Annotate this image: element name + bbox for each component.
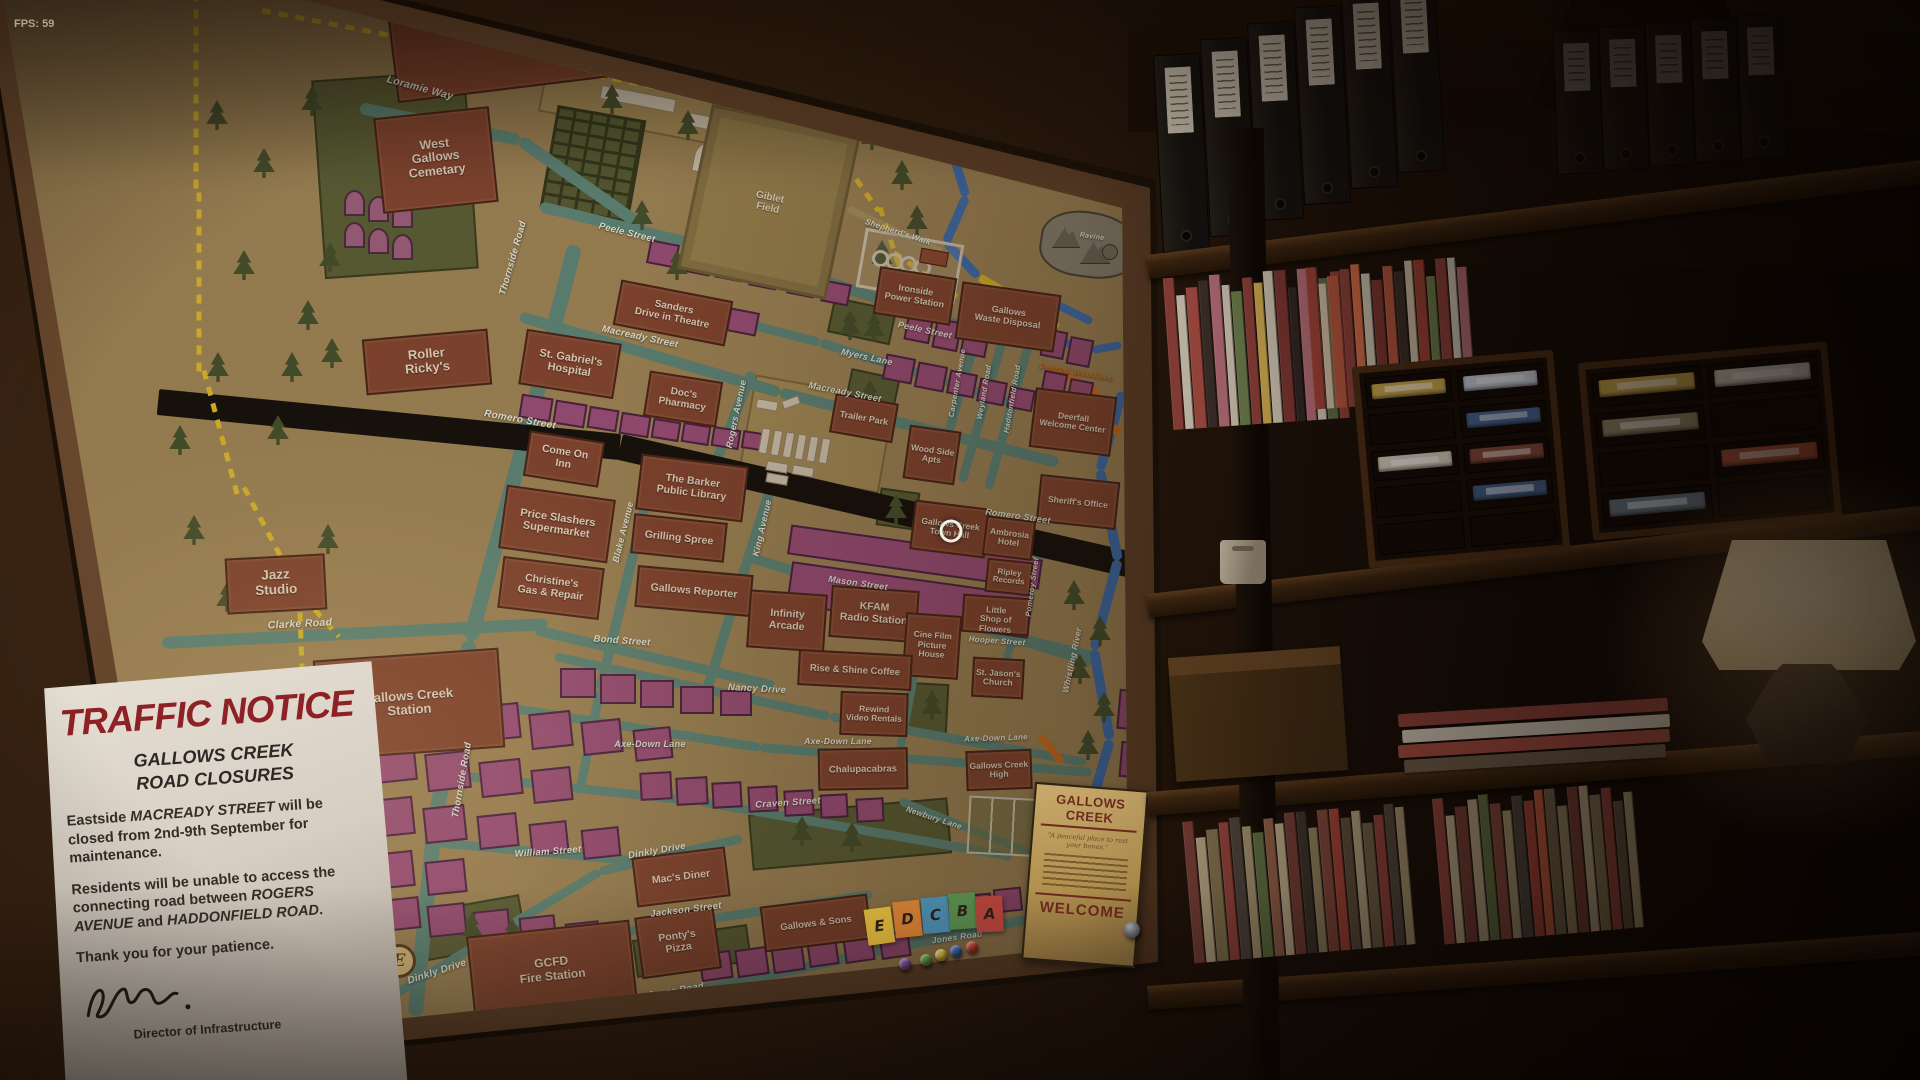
- storage-box: [1168, 646, 1348, 782]
- cassette-slot: [1713, 434, 1826, 477]
- cassette-tape: [1378, 451, 1453, 472]
- cassette-slot: [1371, 444, 1459, 482]
- binder-ring-hole: [1321, 182, 1334, 195]
- binder: [1341, 0, 1398, 189]
- cassette-slot: [1591, 365, 1704, 408]
- binder-ring-hole: [1368, 166, 1381, 179]
- cassette-slot: [1710, 394, 1823, 437]
- cassette-slot: [1463, 436, 1551, 474]
- binder-spine-label: [1609, 39, 1637, 88]
- binder-ring-hole: [1574, 152, 1586, 164]
- binder-ring-hole: [1415, 150, 1428, 163]
- cassette-slot: [1594, 404, 1707, 447]
- binder-spine-label: [1655, 35, 1683, 84]
- cassette-slot: [1456, 363, 1544, 401]
- cassette-slot: [1598, 444, 1711, 487]
- notice-title: TRAFFIC NOTICE: [58, 682, 362, 745]
- binder-ring-hole: [1758, 136, 1770, 148]
- cassette-slot: [1469, 509, 1557, 547]
- notice-subtitle: GALLOWS CREEK ROAD CLOSURES: [62, 734, 366, 800]
- lamp-shade[interactable]: [1702, 540, 1916, 670]
- cassette-organizer: [1578, 341, 1843, 540]
- binder-spine-label: [1164, 66, 1193, 133]
- cassette-slot: [1377, 517, 1465, 555]
- cassette-slot: [1374, 481, 1462, 519]
- cassette-organizer: [1352, 350, 1571, 569]
- notice-paragraph-2: Residents will be unable to access the c…: [71, 860, 376, 937]
- cassette-slot: [1601, 484, 1714, 527]
- binder-ring-hole: [1180, 230, 1193, 243]
- cassette-tape: [1602, 412, 1698, 437]
- cassette-tape: [1472, 480, 1547, 501]
- cassette-tape: [1714, 362, 1810, 387]
- binder-spine-label: [1211, 50, 1240, 117]
- cassette-tape: [1463, 370, 1538, 391]
- cassette-tape: [1469, 443, 1544, 464]
- fps-counter: FPS: 59: [14, 18, 54, 30]
- cassette-tape: [1609, 492, 1705, 517]
- binder: [1737, 13, 1788, 159]
- cassette-tape: [1721, 442, 1817, 467]
- binder-spine-label: [1399, 0, 1428, 54]
- binder: [1599, 25, 1650, 171]
- cassette-tape: [1599, 373, 1695, 398]
- binder-ring-hole: [1712, 140, 1724, 152]
- binder-ring-hole: [1666, 144, 1678, 156]
- binder: [1645, 21, 1696, 167]
- cursor-ring[interactable]: [940, 520, 963, 543]
- notice-paragraph-1: Eastside MACREADY STREET will be closed …: [66, 792, 371, 869]
- cassette-slot: [1466, 473, 1554, 511]
- cassette-slot: [1459, 399, 1547, 437]
- binder: [1691, 17, 1742, 163]
- coffee-mug: [1220, 540, 1266, 584]
- cassette-slot: [1717, 474, 1830, 517]
- binder-spine-label: [1305, 18, 1334, 85]
- book-row: [1432, 782, 1644, 945]
- cassette-slot: [1368, 407, 1456, 445]
- cassette-tape: [1371, 378, 1446, 399]
- cassette-slot: [1365, 371, 1453, 409]
- game-scene: LoramieEstateWestGallowsCemetaryRollerRi…: [0, 0, 1920, 1080]
- traffic-notice[interactable]: TRAFFIC NOTICE GALLOWS CREEK ROAD CLOSUR…: [37, 661, 409, 1080]
- binder: [1553, 29, 1604, 175]
- binder-spine-label: [1563, 43, 1591, 92]
- cassette-slot: [1706, 354, 1819, 397]
- binder-ring-hole: [1620, 148, 1632, 160]
- binder-spine-label: [1747, 27, 1775, 76]
- cassette-tape: [1466, 406, 1541, 427]
- binder-spine-label: [1701, 31, 1729, 80]
- binder-spine-label: [1352, 2, 1381, 69]
- book-row: [1182, 803, 1416, 964]
- binder: [1388, 0, 1445, 173]
- binder-spine-label: [1258, 34, 1287, 101]
- binder-ring-hole: [1274, 198, 1287, 211]
- shelf-interior: [1250, 988, 1920, 1080]
